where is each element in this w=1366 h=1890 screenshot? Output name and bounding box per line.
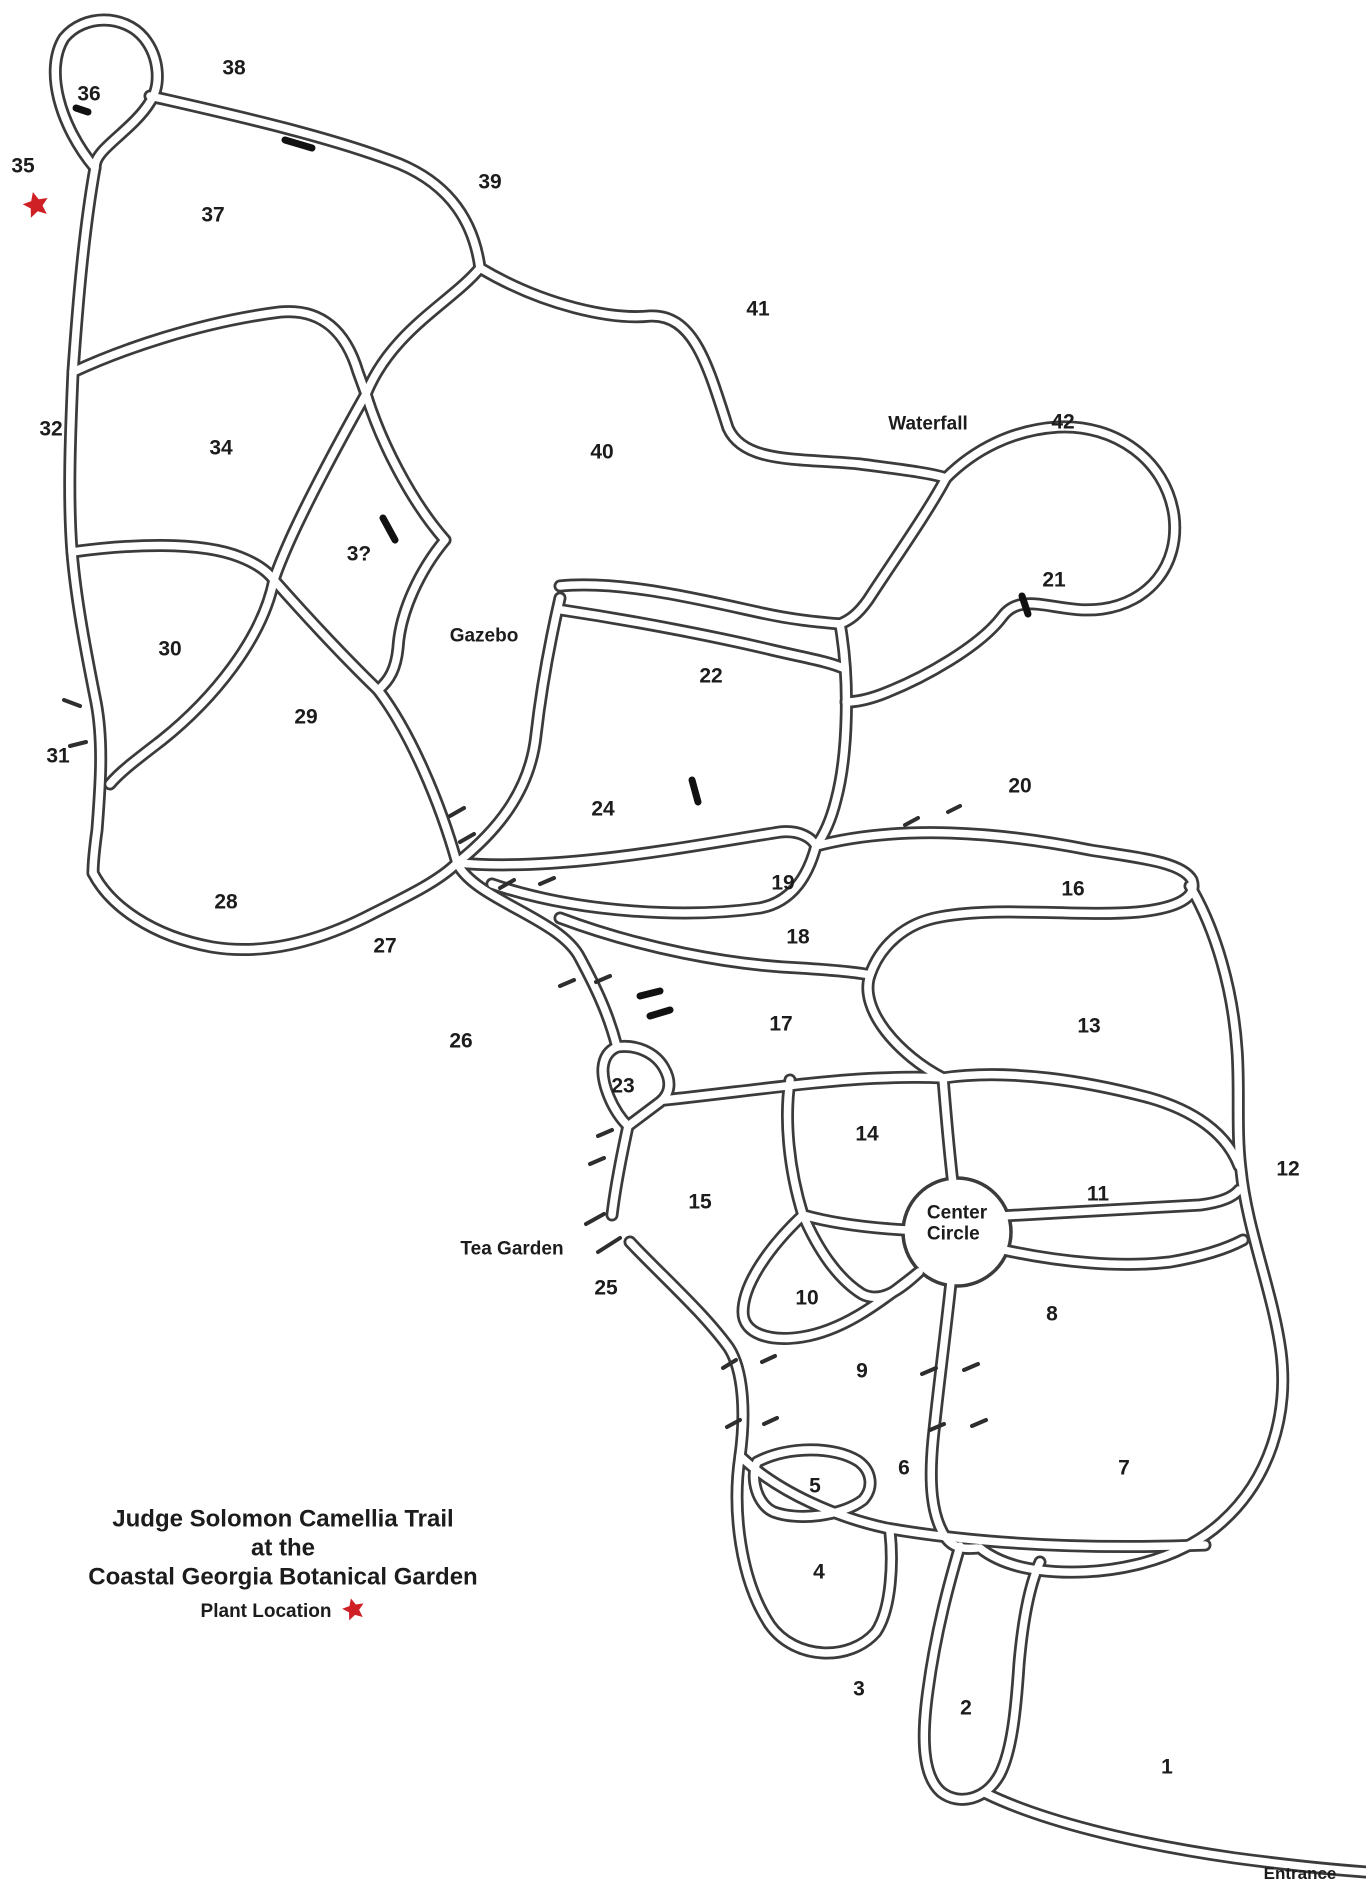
plant-location-star-icon <box>341 1597 365 1627</box>
section-label-15: 15 <box>688 1192 711 1215</box>
section-label-19: 19 <box>771 873 794 896</box>
section-label-23: 23 <box>611 1076 634 1099</box>
section-label-11: 11 <box>1087 1184 1109 1207</box>
section-label-32: 32 <box>39 419 62 442</box>
trail-cores <box>55 20 1366 1872</box>
tea-garden-label: Tea Garden <box>460 1240 563 1261</box>
map-title-line2: at the <box>88 1534 477 1563</box>
section-label-2: 2 <box>960 1698 972 1721</box>
section-label-42: 42 <box>1051 412 1074 435</box>
plant-location-label: Plant Location <box>201 1601 332 1623</box>
section-label-21: 21 <box>1042 570 1065 593</box>
section-label-30: 30 <box>158 639 181 662</box>
trail-map: Waterfall Gazebo Tea Garden Center Circl… <box>0 0 1366 1890</box>
section-label-18: 18 <box>786 927 809 950</box>
section-label-16: 16 <box>1061 879 1084 902</box>
section-label-38: 38 <box>222 58 245 81</box>
waterfall-label: Waterfall <box>888 415 968 436</box>
section-label-4: 4 <box>813 1562 825 1585</box>
section-label-25: 25 <box>594 1278 617 1301</box>
section-label-6: 6 <box>898 1458 910 1481</box>
section-label-17: 17 <box>769 1014 792 1037</box>
section-label-7: 7 <box>1118 1458 1130 1481</box>
map-title-line1: Judge Solomon Camellia Trail <box>88 1505 477 1534</box>
section-label-29: 29 <box>294 707 317 730</box>
section-label-36: 36 <box>77 84 100 107</box>
section-label-37: 37 <box>201 205 224 228</box>
section-label-40: 40 <box>590 442 613 465</box>
section-label-31: 31 <box>46 746 69 769</box>
section-label-41: 41 <box>746 299 769 322</box>
section-label-3: 3 <box>853 1679 865 1702</box>
section-label-14: 14 <box>855 1124 878 1147</box>
section-label-24: 24 <box>591 799 614 822</box>
section-label-34: 34 <box>209 438 232 461</box>
center-circle-label: Center Circle <box>927 1203 987 1244</box>
gazebo-label: Gazebo <box>450 627 519 648</box>
section-label-9: 9 <box>856 1361 868 1384</box>
entrance-label: Entrance <box>1264 1865 1337 1883</box>
plant-location-star-nw-icon <box>22 191 50 224</box>
section-label-5: 5 <box>809 1476 821 1499</box>
section-label-22: 22 <box>699 666 722 689</box>
plant-location-legend: Plant Location <box>201 1597 366 1627</box>
section-label-8: 8 <box>1046 1304 1058 1327</box>
map-title: Judge Solomon Camellia Trail at the Coas… <box>88 1505 477 1592</box>
section-label-26: 26 <box>449 1031 472 1054</box>
section-label-39: 39 <box>478 172 501 195</box>
section-label-20: 20 <box>1008 776 1031 799</box>
section-label-35: 35 <box>11 156 34 179</box>
section-label-28: 28 <box>214 892 237 915</box>
section-label-33: 3? <box>347 544 372 567</box>
section-label-13: 13 <box>1077 1016 1100 1039</box>
map-title-line3: Coastal Georgia Botanical Garden <box>88 1563 477 1592</box>
section-label-27: 27 <box>373 936 396 959</box>
section-label-1: 1 <box>1161 1757 1173 1780</box>
section-label-10: 10 <box>795 1288 818 1311</box>
section-label-12: 12 <box>1276 1159 1299 1182</box>
